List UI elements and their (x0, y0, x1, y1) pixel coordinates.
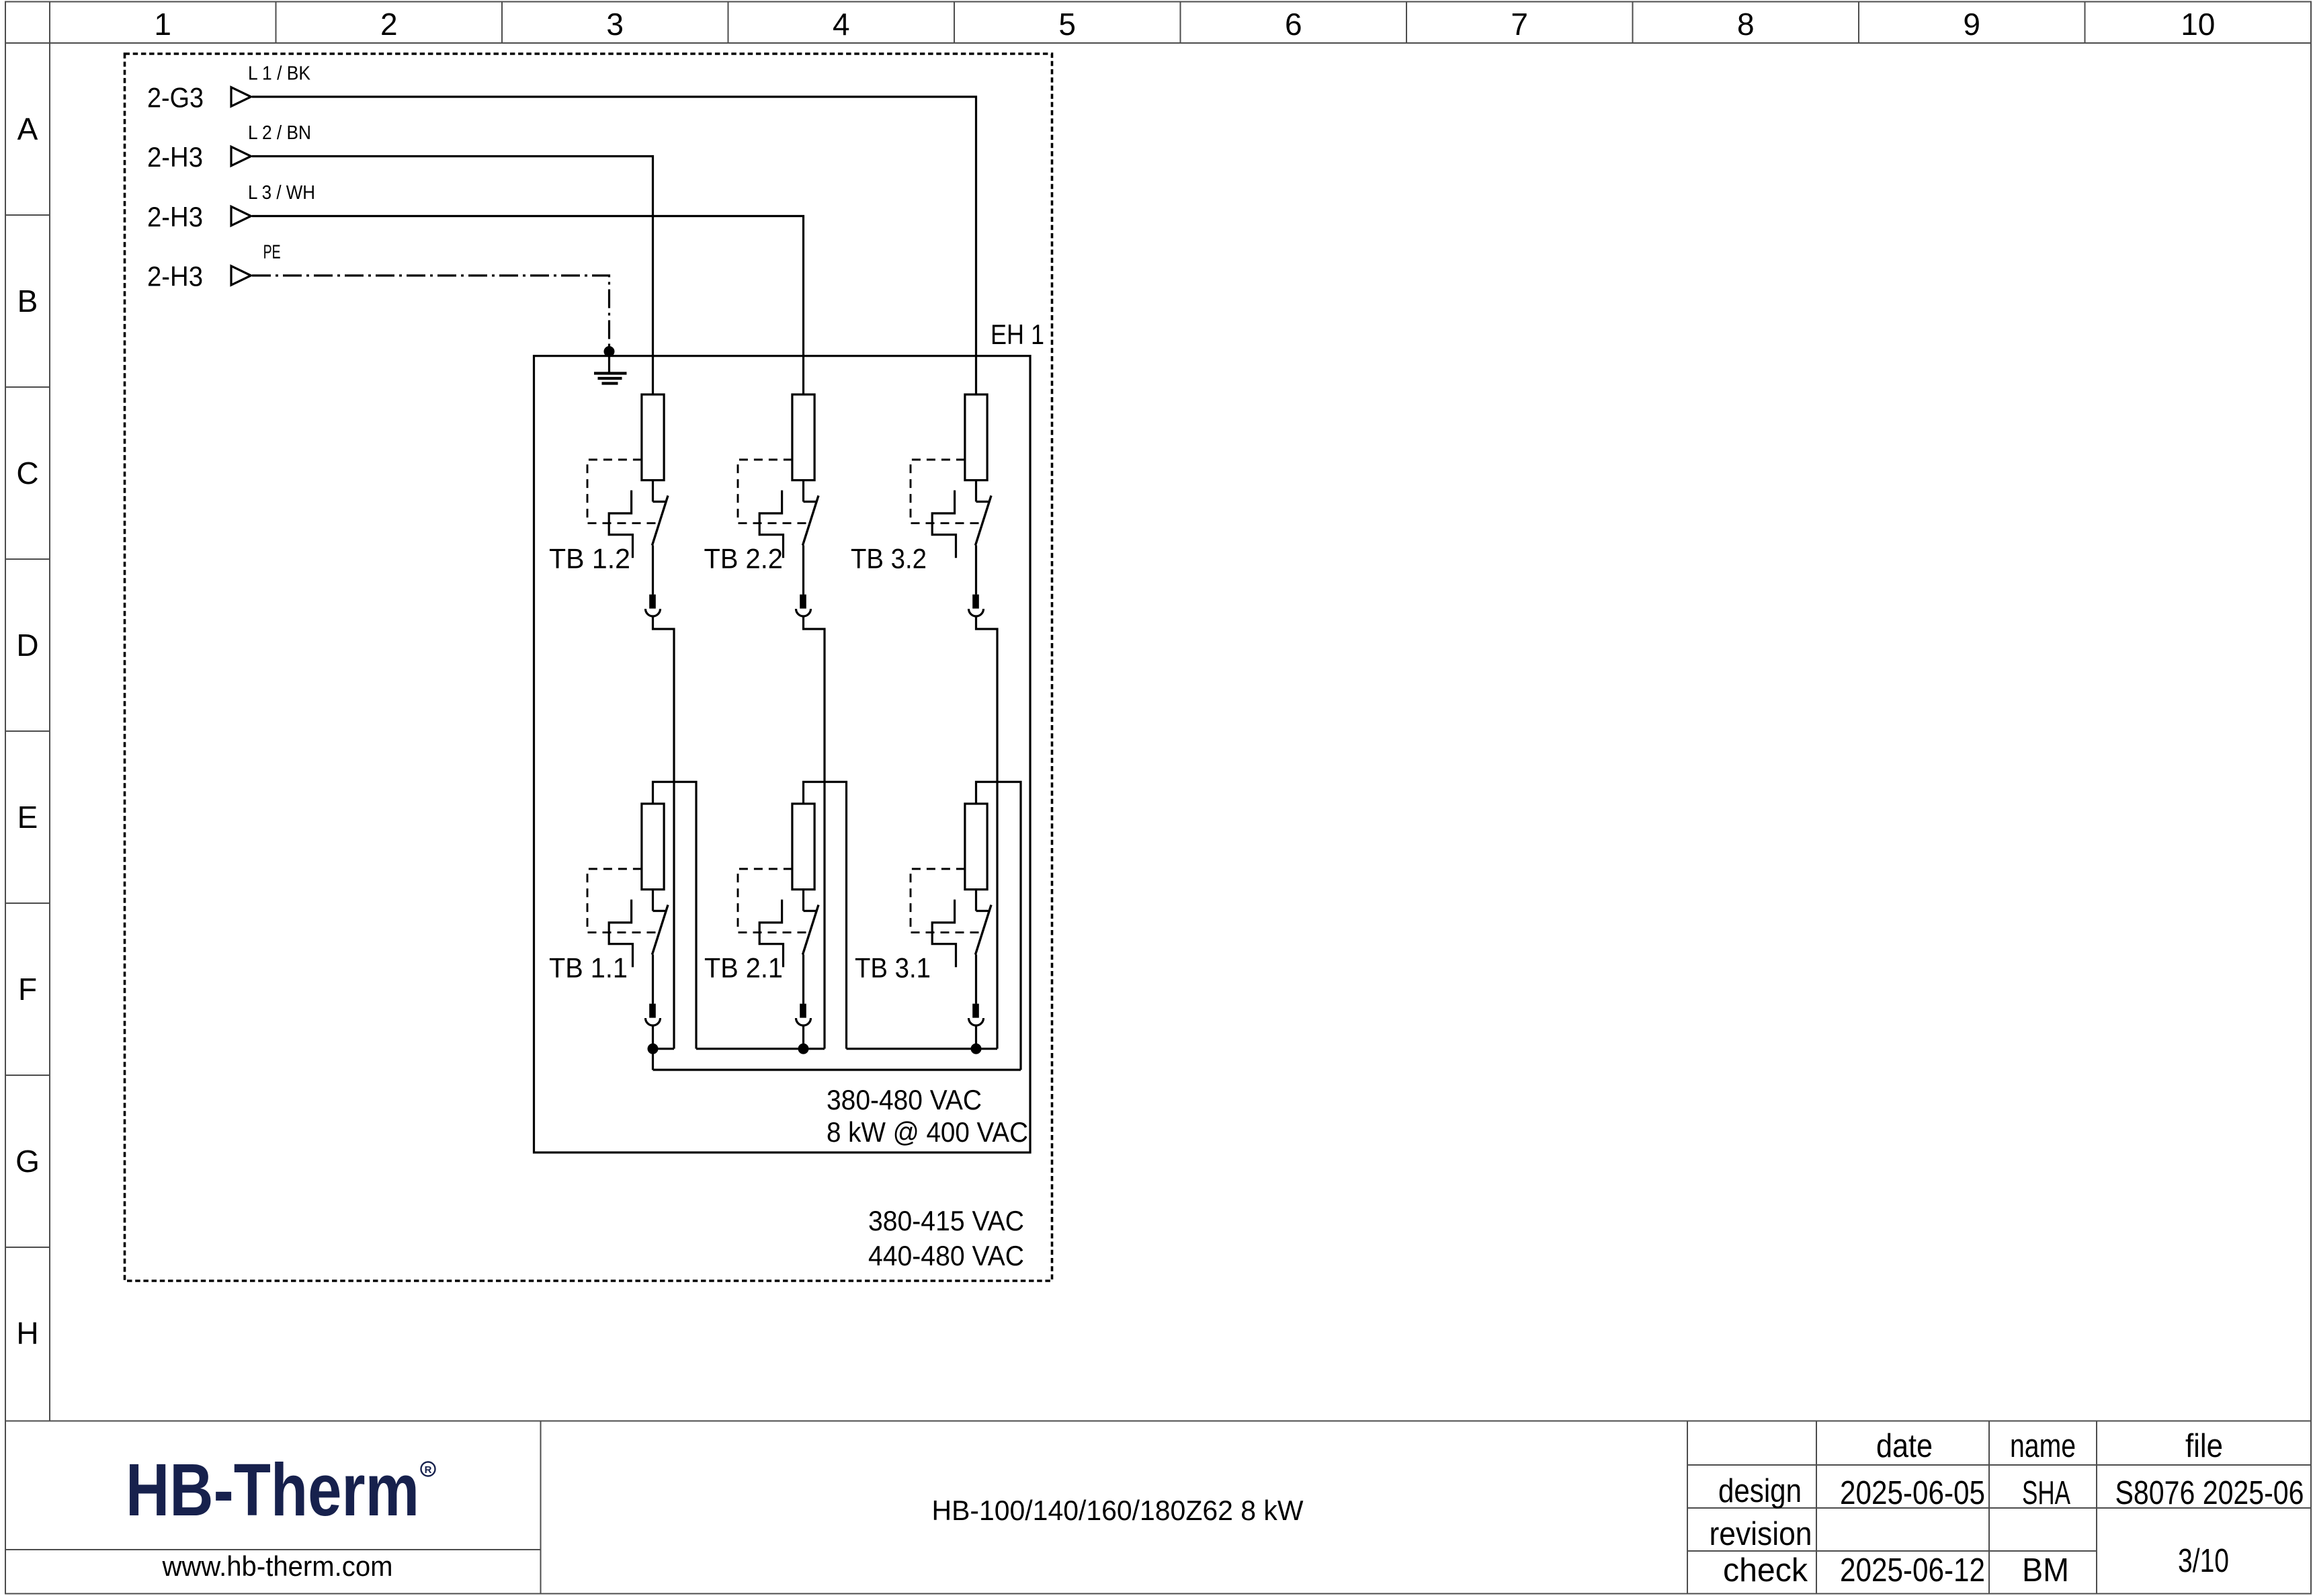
svg-text:R: R (425, 1464, 432, 1476)
svg-text:L 1 / BK: L 1 / BK (248, 63, 311, 85)
svg-text:B: B (17, 284, 38, 319)
svg-text:1: 1 (154, 7, 171, 42)
svg-text:8: 8 (1737, 7, 1755, 42)
svg-text:HB-Therm: HB-Therm (126, 1449, 419, 1531)
svg-text:2-H3: 2-H3 (147, 261, 203, 292)
svg-text:name: name (2010, 1428, 2076, 1464)
svg-text:9: 9 (1963, 7, 1980, 42)
svg-text:SHA: SHA (2022, 1475, 2070, 1511)
svg-text:2-H3: 2-H3 (147, 141, 203, 173)
svg-text:G: G (15, 1144, 40, 1179)
svg-text:E: E (17, 800, 38, 835)
svg-text:file: file (2185, 1428, 2223, 1464)
svg-text:5: 5 (1058, 7, 1076, 42)
svg-text:date: date (1876, 1428, 1933, 1464)
svg-text:2025-06-12: 2025-06-12 (1840, 1552, 1985, 1589)
svg-text:TB 1.1: TB 1.1 (549, 952, 628, 984)
svg-text:BM: BM (2022, 1552, 2069, 1589)
svg-text:10: 10 (2181, 7, 2215, 42)
svg-text:www.hb-therm.com: www.hb-therm.com (162, 1550, 393, 1582)
svg-text:C: C (16, 456, 38, 491)
svg-text:D: D (16, 628, 38, 663)
svg-text:TB 1.2: TB 1.2 (549, 543, 630, 575)
svg-text:HB-100/140/160/180Z62 8 kW: HB-100/140/160/180Z62 8 kW (932, 1495, 1304, 1526)
svg-text:check: check (1723, 1552, 1808, 1589)
svg-text:EH 1: EH 1 (991, 319, 1044, 350)
svg-text:PE: PE (263, 242, 281, 263)
svg-text:8 kW @ 400 VAC: 8 kW @ 400 VAC (827, 1116, 1028, 1148)
svg-text:3: 3 (606, 7, 624, 42)
svg-text:TB 3.1: TB 3.1 (855, 952, 931, 984)
svg-text:2-G3: 2-G3 (147, 82, 204, 114)
svg-text:6: 6 (1285, 7, 1302, 42)
svg-text:L 2 / BN: L 2 / BN (248, 122, 311, 144)
svg-text:F: F (18, 972, 37, 1007)
svg-text:380-480 VAC: 380-480 VAC (827, 1084, 982, 1116)
svg-text:2025-06-05: 2025-06-05 (1840, 1475, 1985, 1511)
svg-text:design: design (1718, 1473, 1802, 1509)
svg-text:4: 4 (833, 7, 850, 42)
svg-text:3/10: 3/10 (2178, 1543, 2229, 1579)
svg-text:2: 2 (380, 7, 398, 42)
svg-text:2-H3: 2-H3 (147, 201, 203, 233)
svg-text:440-480 VAC: 440-480 VAC (868, 1240, 1024, 1271)
svg-text:A: A (17, 112, 38, 146)
svg-text:TB 3.2: TB 3.2 (851, 543, 927, 575)
svg-text:H: H (16, 1316, 38, 1351)
svg-text:380-415 VAC: 380-415 VAC (868, 1205, 1024, 1236)
svg-text:L 3 / WH: L 3 / WH (248, 182, 315, 204)
svg-text:TB 2.2: TB 2.2 (704, 543, 784, 575)
svg-text:S8076 2025-06: S8076 2025-06 (2115, 1475, 2304, 1511)
svg-text:TB 2.1: TB 2.1 (704, 952, 783, 984)
svg-text:revision: revision (1710, 1516, 1812, 1552)
svg-text:7: 7 (1511, 7, 1528, 42)
